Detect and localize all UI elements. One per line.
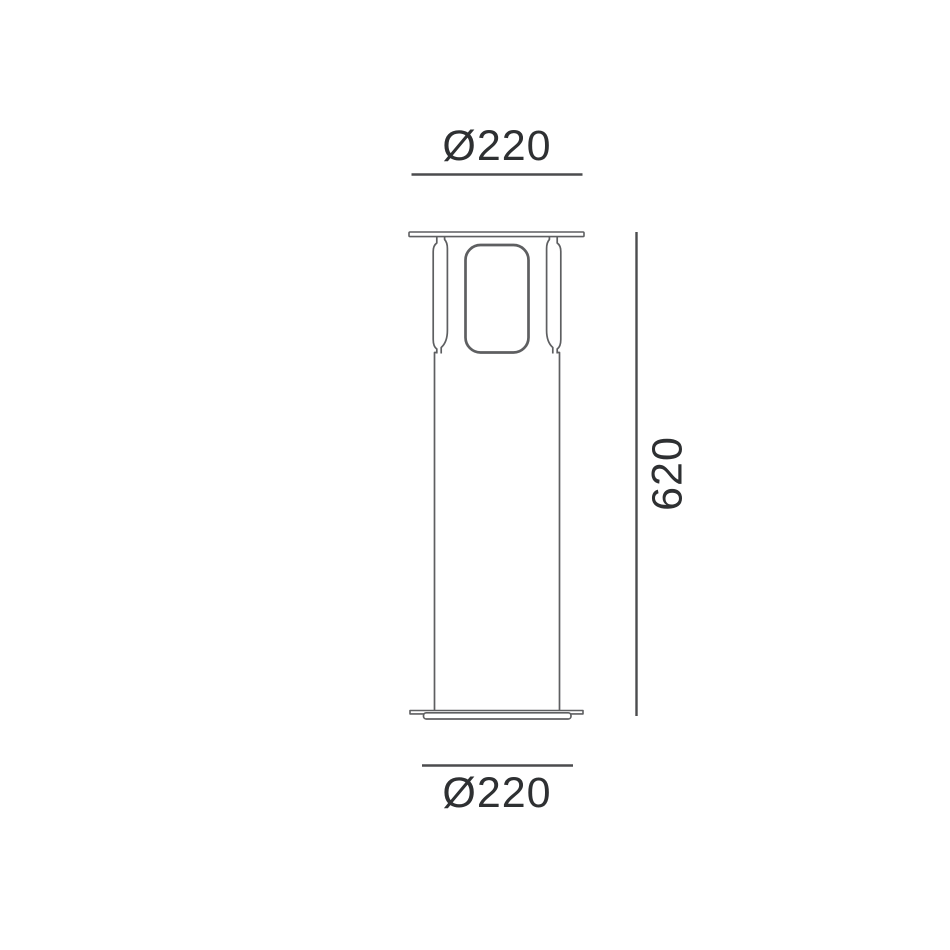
shaft-left-edge bbox=[435, 353, 438, 711]
top-diameter-label: Ø220 bbox=[397, 125, 597, 168]
left-post-outer-edge bbox=[433, 237, 437, 354]
base-plate bbox=[424, 713, 572, 719]
right-post-inner-edge bbox=[547, 237, 553, 354]
lamp-window bbox=[466, 245, 529, 353]
top-cap-plate bbox=[409, 232, 584, 237]
shaft-right-edge bbox=[557, 353, 560, 711]
bollard-figure-group bbox=[409, 232, 584, 719]
right-post-group bbox=[547, 237, 561, 354]
height-label: 620 bbox=[647, 374, 690, 574]
right-post-outer-edge bbox=[557, 237, 561, 354]
dimension-drawing-page: Ø220 620 Ø220 bbox=[0, 0, 950, 950]
bottom-diameter-label: Ø220 bbox=[397, 772, 597, 815]
left-post-inner-edge bbox=[441, 237, 447, 354]
